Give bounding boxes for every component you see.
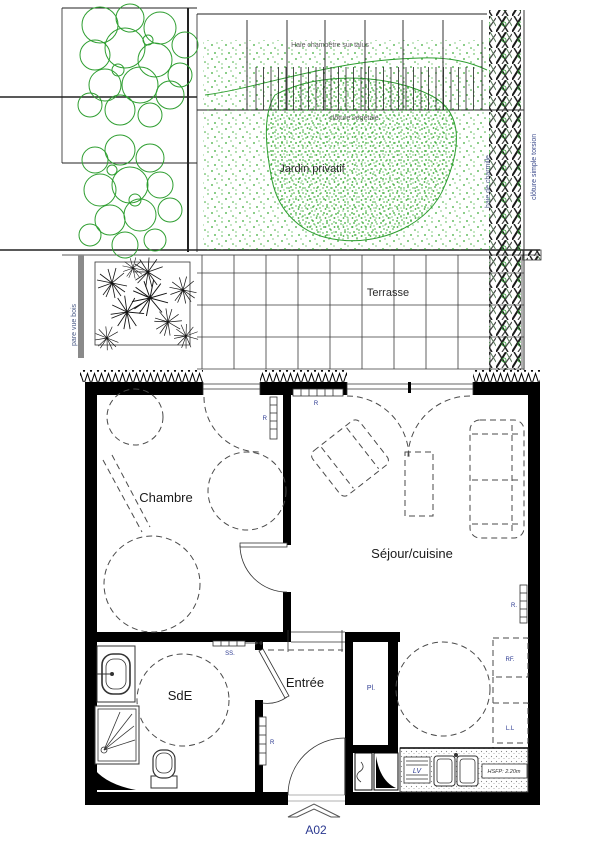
garden-label: Jardin privatif — [279, 163, 345, 175]
exterior-walls — [80, 370, 540, 805]
dishwasher-label: LV — [413, 768, 423, 775]
living-label: Séjour/cuisine — [371, 546, 453, 561]
washer-label: L.L — [506, 726, 515, 732]
living-radiator-top-label: R — [314, 401, 319, 407]
bottom-wall-left — [85, 792, 288, 805]
wall-bedroom-bathroom — [97, 632, 291, 642]
toilet — [151, 750, 177, 788]
bay-door-swing-right — [408, 396, 470, 458]
tree-canopies — [78, 4, 198, 258]
terrace-area: pare vue bois Terrasse — [71, 253, 524, 369]
living-radiator-right-label: R. — [511, 603, 517, 609]
bathroom-duct-wedge — [92, 766, 136, 790]
bedroom-contents: R — [103, 389, 286, 632]
entrance-threshold — [288, 795, 345, 801]
plan-reference: A02 — [288, 804, 340, 837]
ceiling-height-label: HSFP: 2.20m — [487, 769, 520, 775]
bathroom-door-swing — [262, 697, 287, 703]
bedroom-clearance-circle-3 — [104, 536, 200, 632]
interior-walls — [97, 395, 400, 792]
top-wall-left — [85, 382, 203, 395]
washer-outline — [493, 703, 528, 743]
entrance-label: Entrée — [286, 675, 324, 690]
bedroom-door-leaf — [240, 543, 287, 547]
bathroom-label: SdE — [168, 688, 193, 703]
bedroom-dashed-diagonal-1 — [103, 460, 142, 532]
wood-privacy-screen — [78, 255, 84, 358]
bottom-wall-right — [345, 792, 540, 805]
facade-hatch-mid — [260, 370, 347, 382]
fence-right-label: clôture simple torsion — [531, 134, 538, 200]
charmille-hedge-strip — [489, 10, 521, 370]
hedge-fence-dense — [250, 67, 478, 110]
hedge-right-label: haie de charmille — [485, 155, 492, 208]
closet-right-wall — [388, 642, 398, 753]
bedroom-window — [203, 382, 260, 395]
hedge-top-label: Haie champêtre sur talus — [291, 42, 369, 49]
bedroom-door-swing — [240, 545, 287, 592]
bathroom-contents: SS. — [92, 641, 263, 790]
wall-bedroom-living-upper — [283, 395, 291, 545]
shower — [95, 706, 139, 764]
armchair — [309, 417, 391, 498]
bay-window — [347, 382, 473, 395]
right-wall — [528, 382, 540, 805]
passage-jambs — [288, 630, 345, 652]
kitchen-clearance-circle — [396, 642, 490, 736]
living-radiator-right: R. — [511, 585, 527, 623]
fridge-label: RF. — [506, 657, 515, 663]
sofa — [470, 420, 524, 538]
terrace-tile-grid — [197, 255, 524, 369]
planter-shrubs — [93, 253, 203, 353]
floor-plan-drawing: Haie champêtre sur talus clôture végétal… — [0, 0, 600, 842]
bedroom-radiator: R — [263, 397, 277, 439]
living-contents: R R. RF. — [293, 389, 528, 792]
closet-left-wall — [345, 642, 353, 792]
wall-bedroom-living-lower — [283, 592, 291, 642]
bay-door-swing-left — [347, 396, 409, 458]
washbasin — [97, 646, 135, 702]
bedroom-clearance-circle-2 — [208, 452, 286, 530]
fence-mid-label: clôture végétale — [329, 115, 379, 122]
bedroom-window-swing — [204, 397, 259, 452]
bedroom-clearance-circle-1 — [107, 389, 163, 445]
entry-radiator: R — [259, 717, 275, 765]
bathroom-door-leaf — [259, 649, 289, 698]
ceiling-height-tag: HSFP: 2.20m — [482, 764, 527, 778]
closet-label: Pl. — [367, 685, 375, 692]
room-labels: Chambre Séjour/cuisine SdE Entrée — [139, 490, 453, 703]
coffee-table — [405, 452, 433, 516]
front-door-swing — [288, 738, 345, 795]
wall-closet-top — [345, 632, 400, 642]
entry-radiator-label: R — [270, 740, 275, 746]
kitchen-counter: LV HSFP: 2.20m — [400, 748, 528, 792]
duct-shaft — [374, 753, 398, 790]
terrace-label: Terrasse — [367, 287, 409, 299]
utility-box — [523, 250, 541, 260]
towel-dryer-label: SS. — [225, 651, 235, 657]
water-heater — [355, 753, 372, 790]
dishwasher: LV — [404, 757, 430, 783]
living-radiator-top: R — [293, 389, 343, 407]
bedroom-label: Chambre — [139, 490, 192, 505]
floor-plan-page: Haie champêtre sur talus clôture végétal… — [0, 0, 600, 842]
entry-arrow-icon — [288, 804, 340, 817]
plan-ref-label: A02 — [305, 823, 327, 837]
closet-bottom-wall — [345, 745, 398, 753]
privacy-screen-label: pare vue bois — [71, 303, 78, 346]
facade-hatch-left — [80, 370, 203, 382]
entry-contents: R — [259, 717, 275, 765]
facade-hatch-right — [473, 370, 540, 382]
bedroom-radiator-label: R — [263, 416, 268, 422]
